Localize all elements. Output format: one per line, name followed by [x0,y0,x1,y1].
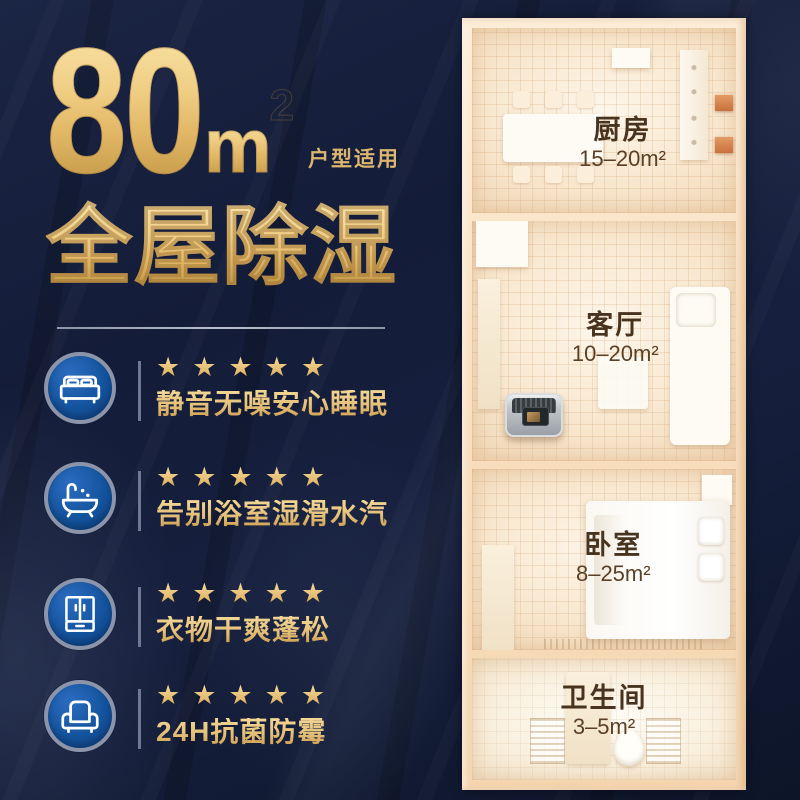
bed-icon [44,352,116,424]
sofa-icon [44,680,116,752]
feature-dry-clothes: ★★★★★ 衣物干爽蓬松 [44,578,404,656]
room-label-bathroom: 卫生间 3–5m² [561,684,648,738]
star-rating: ★★★★★ [156,580,337,607]
floorplan-room-kitchen: 厨房 15–20m² [472,28,736,213]
dining-chair [513,91,530,108]
bedside-rug [544,639,702,649]
feature-separator [138,689,141,749]
feature-separator [138,587,141,647]
wardrobe [482,545,514,650]
dining-chair [545,166,562,183]
headline-subtitle: 全屋除湿 [46,200,398,295]
feature-label: 24H抗菌防霉 [156,718,337,746]
headline-unit: m2 [204,109,296,185]
feature-bathroom-moisture: ★★★★★ 告别浴室湿滑水汽 [44,462,404,540]
range-hood [612,48,650,68]
sofa-cushion [676,293,716,327]
tv-panel [478,279,500,409]
feature-separator [138,361,141,421]
poster-canvas: 80 m2 户型适用 全屋除湿 ★★★★★ 静音无噪安心睡眠 [0,0,800,800]
device-screen [522,407,549,426]
pillow [698,553,724,581]
wardrobe-icon [44,578,116,650]
towel-rack [646,718,681,764]
dining-chair [545,91,562,108]
feature-quiet-sleep: ★★★★★ 静音无噪安心睡眠 [44,352,404,430]
headline: 80 m2 户型适用 [46,22,400,200]
dehumidifier-device [505,393,563,437]
headline-suffix: 户型适用 [308,143,400,173]
stove-unit [715,137,733,153]
dining-chair [577,91,594,108]
feature-antibacterial: ★★★★★ 24H抗菌防霉 [44,680,404,758]
star-rating: ★★★★★ [156,354,388,381]
feature-label: 静音无噪安心睡眠 [156,390,388,418]
headline-number: 80 [46,22,202,200]
star-rating: ★★★★★ [156,682,337,709]
floorplan-room-bedroom: 卧室 8–25m² [472,469,736,650]
feature-label: 告别浴室湿滑水汽 [156,500,388,528]
feature-separator [138,471,141,531]
divider-line [57,327,385,329]
floorplan-room-bathroom: 卫生间 3–5m² [472,658,736,780]
star-rating: ★★★★★ [156,464,388,491]
stove-unit [715,95,733,111]
floorplan: 厨房 15–20m² 客厅 10–20m² [462,18,746,790]
room-label-living: 客厅 10–20m² [572,311,659,365]
headline-unit-sup: 2 [270,81,294,130]
cabinet [476,221,528,267]
feature-label: 衣物干爽蓬松 [156,616,337,644]
kitchen-counter [680,50,708,160]
bathtub-icon [44,462,116,534]
floorplan-room-living: 客厅 10–20m² [472,221,736,461]
room-label-bedroom: 卧室 8–25m² [576,531,651,585]
room-label-kitchen: 厨房 15–20m² [579,116,666,170]
dining-chair [513,166,530,183]
pillow [698,517,724,545]
